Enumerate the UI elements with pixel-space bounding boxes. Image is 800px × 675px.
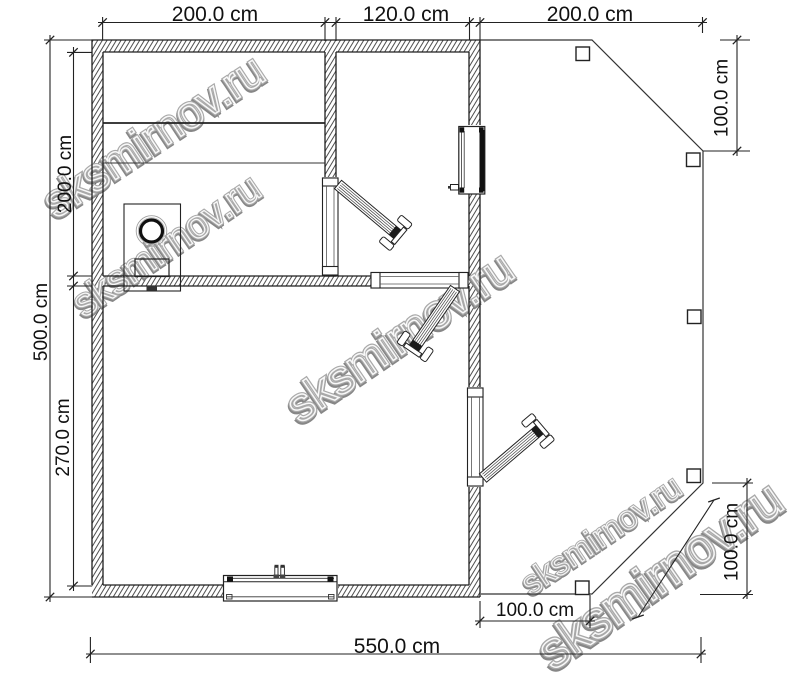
- svg-text:270.0 cm: 270.0 cm: [53, 398, 74, 476]
- svg-text:120.0 cm: 120.0 cm: [363, 3, 449, 26]
- svg-text:100.0 cm: 100.0 cm: [722, 503, 743, 581]
- svg-text:100.0 cm: 100.0 cm: [712, 59, 733, 137]
- svg-text:100.0 cm: 100.0 cm: [496, 600, 574, 621]
- svg-text:200.0 cm: 200.0 cm: [172, 3, 258, 26]
- svg-text:200.0 cm: 200.0 cm: [547, 3, 633, 26]
- svg-text:200.0 cm: 200.0 cm: [55, 135, 76, 213]
- svg-text:500.0 cm: 500.0 cm: [31, 283, 52, 361]
- svg-text:550.0 cm: 550.0 cm: [354, 635, 440, 658]
- svg-text:sksmirnov.ru: sksmirnov.ru: [276, 240, 523, 432]
